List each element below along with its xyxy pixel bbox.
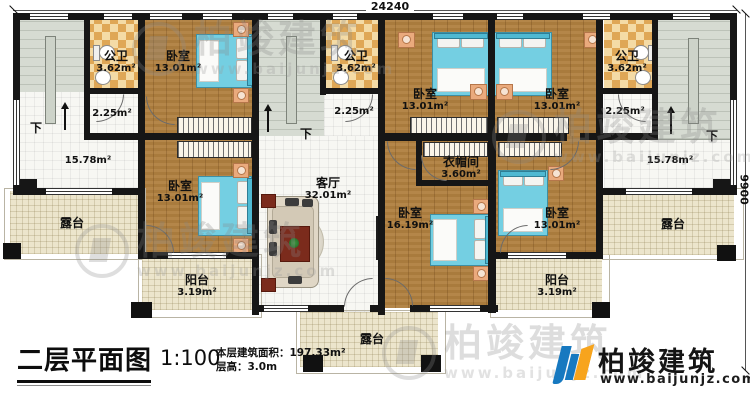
dimension-right-value: 9900 [738,168,750,212]
sofa-cushion [269,220,277,234]
window [673,13,710,20]
side-table [261,278,276,292]
balcony-left-floor [142,256,256,310]
window [30,13,68,20]
toilet-icon [337,45,353,60]
window [583,13,610,20]
nightstand [473,199,489,214]
window [46,188,112,195]
bed-headboard [496,33,550,39]
plan-scale: 1:100 [160,346,221,370]
dimension-top-value: 24240 [366,0,414,13]
stair-rail-left [45,36,56,124]
brand-logo: 柏竣建筑 www.baijunjz.com [556,336,746,396]
column [717,245,736,261]
terrace-right-floor [602,190,734,255]
wall-corr-left-bottom [84,133,142,140]
title-underline [17,380,151,383]
balcony-right-floor [494,256,602,310]
balcony-door-window [168,252,226,259]
sink-icon [333,70,349,85]
nightstand [496,84,513,100]
toilet-icon [633,45,649,60]
window [333,13,357,20]
bed-headboard [434,33,488,39]
plan-height-note: 层高：3.0m [216,359,277,374]
wall-stair-left [84,13,90,140]
wall-corr-right-bottom [580,133,658,140]
window [150,13,182,20]
sofa-cushion [269,242,277,256]
nightstand [473,266,489,281]
nightstand [233,163,249,178]
window [203,13,232,20]
window [626,188,692,195]
brand-mark-icon [556,338,592,388]
wall-bed-left-divider [138,133,259,140]
nightstand [233,22,249,37]
wardrobe [177,117,252,134]
terrace-left-floor [10,191,142,254]
wall-living-left [252,13,259,315]
window [433,13,463,20]
title-underline-thin [17,385,151,386]
bed-sheet [199,40,219,82]
column [421,355,441,372]
column [592,302,610,318]
table-plant [289,238,299,248]
floor-plan: 公卫 3.62m² 卧室 13.01m² 公卫 3.62m² 卧室 13.01m… [0,0,750,405]
wardrobe [497,117,569,134]
window [268,13,293,20]
brand-url: www.baijunjz.com [600,372,750,387]
stair-arrow-mid [267,110,269,132]
side-table [261,194,276,208]
plan-title: 二层平面图 [17,346,152,376]
stair-arrow-left [64,108,66,130]
sofa-cushion [302,199,313,207]
balcony-door-window [508,252,566,259]
window [497,13,523,20]
stair-down-label-mid: 下 [300,125,312,142]
stair-arrow-right [670,112,672,134]
title-block: 二层平面图 [17,340,152,386]
wall-master-right [488,133,496,313]
column [3,243,21,259]
wardrobe [177,141,252,158]
nightstand [233,88,249,103]
stair-down-label-right: 下 [706,127,718,144]
window [730,100,737,185]
sofa-cushion [288,276,302,284]
stair-rail-right [688,38,699,124]
wall-cloak-bottom [416,180,496,186]
stair-down-label-left: 下 [30,119,42,136]
sink-icon [95,70,111,85]
sofa-cushion [285,198,299,206]
nightstand [398,32,415,48]
column [131,302,152,318]
wall-bed-center-divider [488,13,495,133]
plan-area-note: 本层建筑面积：197.33m² [216,345,346,360]
bed-sheet [433,219,457,261]
window [104,13,132,20]
toilet-icon [99,45,115,60]
wall-stair-right [652,13,658,140]
nightstand [233,238,249,253]
window [13,100,20,185]
bed-headboard [500,171,546,177]
wardrobe [410,117,488,134]
wall-stair-mid [320,13,326,95]
bed-sheet [201,182,220,230]
hall-left-floor [16,92,142,188]
stair-rail-mid [286,36,297,124]
window [264,305,308,312]
sink-icon [635,70,651,85]
wall-living-right [378,13,385,315]
window [430,305,480,312]
wall-bed-right-divider [378,133,567,141]
nightstand [470,84,487,100]
